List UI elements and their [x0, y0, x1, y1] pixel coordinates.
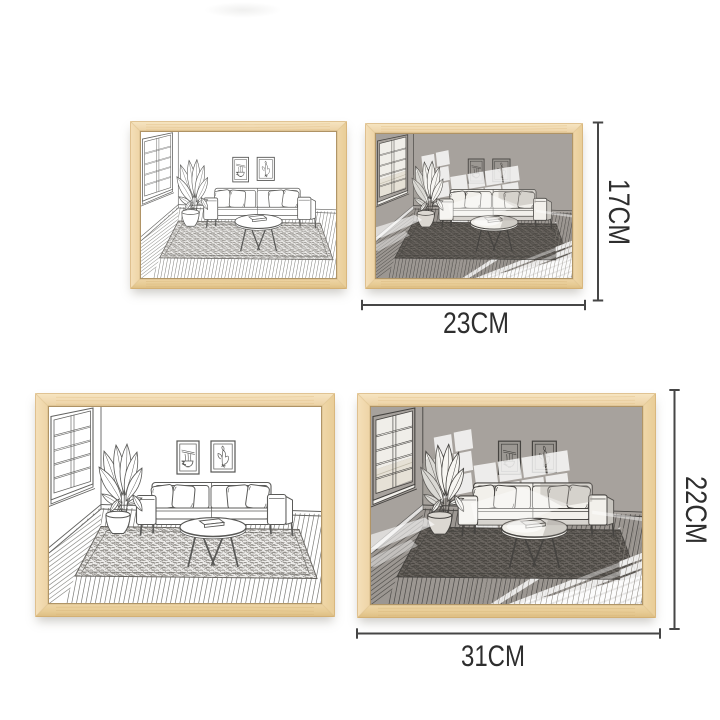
svg-text:31CM: 31CM	[461, 640, 525, 673]
svg-text:23CM: 23CM	[443, 307, 509, 340]
svg-text:22CM: 22CM	[679, 476, 712, 544]
svg-text:17CM: 17CM	[602, 179, 635, 245]
